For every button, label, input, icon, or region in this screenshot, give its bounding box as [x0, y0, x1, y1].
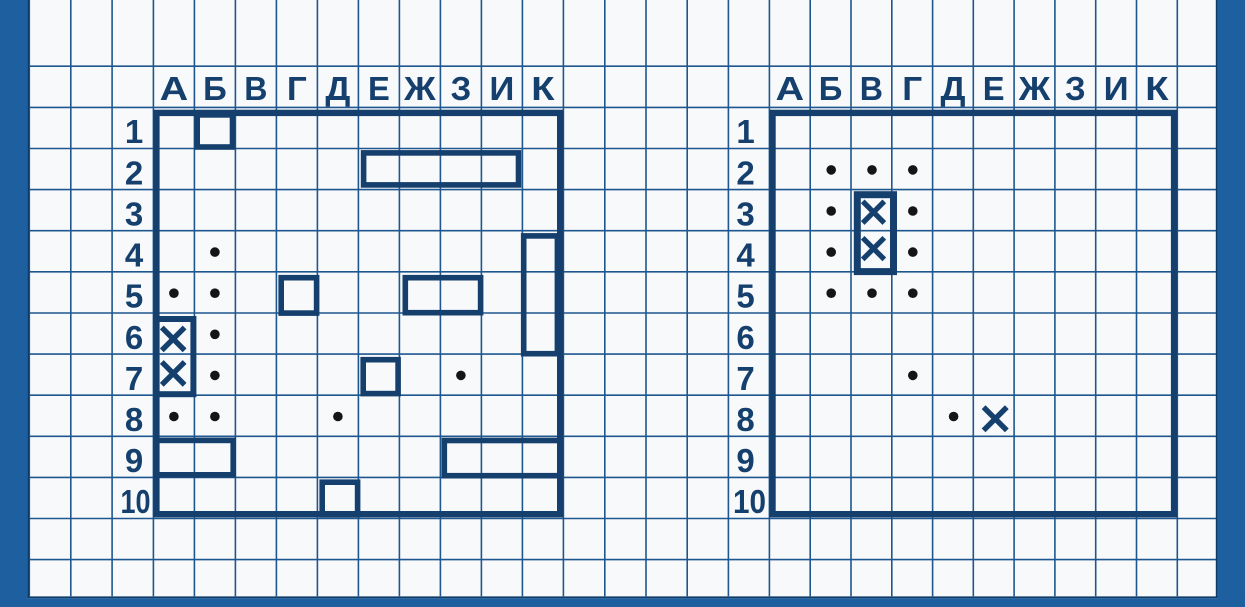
svg-text:5: 5 — [736, 278, 754, 315]
svg-text:3: 3 — [125, 195, 143, 232]
svg-text:Е: Е — [983, 70, 1005, 107]
svg-text:А: А — [160, 70, 189, 107]
svg-text:З: З — [451, 70, 472, 107]
svg-text:4: 4 — [736, 237, 755, 274]
svg-text:2: 2 — [736, 154, 754, 191]
svg-text:Д: Д — [941, 70, 966, 107]
svg-text:5: 5 — [125, 278, 143, 315]
svg-text:К: К — [531, 70, 555, 107]
svg-text:1: 1 — [125, 113, 143, 150]
svg-text:10: 10 — [121, 483, 151, 520]
svg-text:А: А — [776, 70, 805, 107]
svg-text:2: 2 — [125, 154, 143, 191]
svg-text:8: 8 — [736, 401, 754, 438]
svg-text:З: З — [1065, 70, 1086, 107]
svg-text:Г: Г — [902, 70, 922, 107]
svg-text:7: 7 — [736, 360, 754, 397]
svg-text:Г: Г — [287, 70, 307, 107]
svg-text:6: 6 — [736, 319, 754, 356]
svg-text:3: 3 — [736, 195, 754, 232]
svg-text:4: 4 — [125, 237, 144, 274]
svg-text:9: 9 — [125, 442, 143, 479]
svg-text:К: К — [1145, 70, 1169, 107]
svg-text:10: 10 — [733, 483, 766, 520]
svg-text:В: В — [860, 70, 883, 107]
svg-text:В: В — [244, 70, 267, 107]
svg-text:Ж: Ж — [403, 70, 436, 107]
svg-text:Б: Б — [819, 70, 843, 107]
svg-text:6: 6 — [125, 319, 143, 356]
svg-text:9: 9 — [736, 442, 754, 479]
svg-text:8: 8 — [125, 401, 143, 438]
svg-text:7: 7 — [125, 360, 143, 397]
svg-text:1: 1 — [736, 113, 754, 150]
svg-text:Б: Б — [203, 70, 227, 107]
svg-text:И: И — [1104, 70, 1129, 107]
svg-text:Е: Е — [368, 70, 390, 107]
svg-text:И: И — [489, 70, 514, 107]
svg-text:Д: Д — [325, 70, 350, 107]
svg-text:Ж: Ж — [1018, 70, 1051, 107]
